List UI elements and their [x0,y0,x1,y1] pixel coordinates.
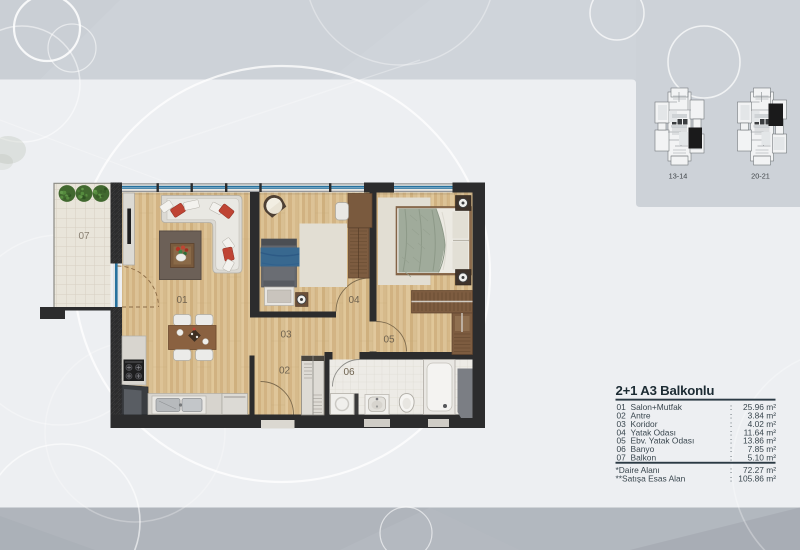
svg-text:01: 01 [176,295,188,306]
svg-text:05: 05 [383,335,395,346]
svg-text:06: 06 [343,367,355,378]
svg-text:20-21: 20-21 [751,172,770,181]
svg-text:5.10 m²: 5.10 m² [748,453,777,463]
svg-text:07: 07 [617,453,627,463]
svg-text::: : [730,453,732,463]
svg-text:2+1 A3 Balkonlu: 2+1 A3 Balkonlu [616,383,715,398]
svg-text:**Satışa Esas Alan: **Satışa Esas Alan [616,474,686,484]
svg-text:07: 07 [78,231,90,242]
svg-text:03: 03 [280,330,292,341]
svg-text::: : [730,474,732,484]
svg-text:13-14: 13-14 [669,172,688,181]
svg-text:Balkon: Balkon [631,453,657,463]
svg-text:02: 02 [279,366,291,377]
svg-text:04: 04 [348,295,360,306]
svg-text:105.86 m²: 105.86 m² [738,474,776,484]
